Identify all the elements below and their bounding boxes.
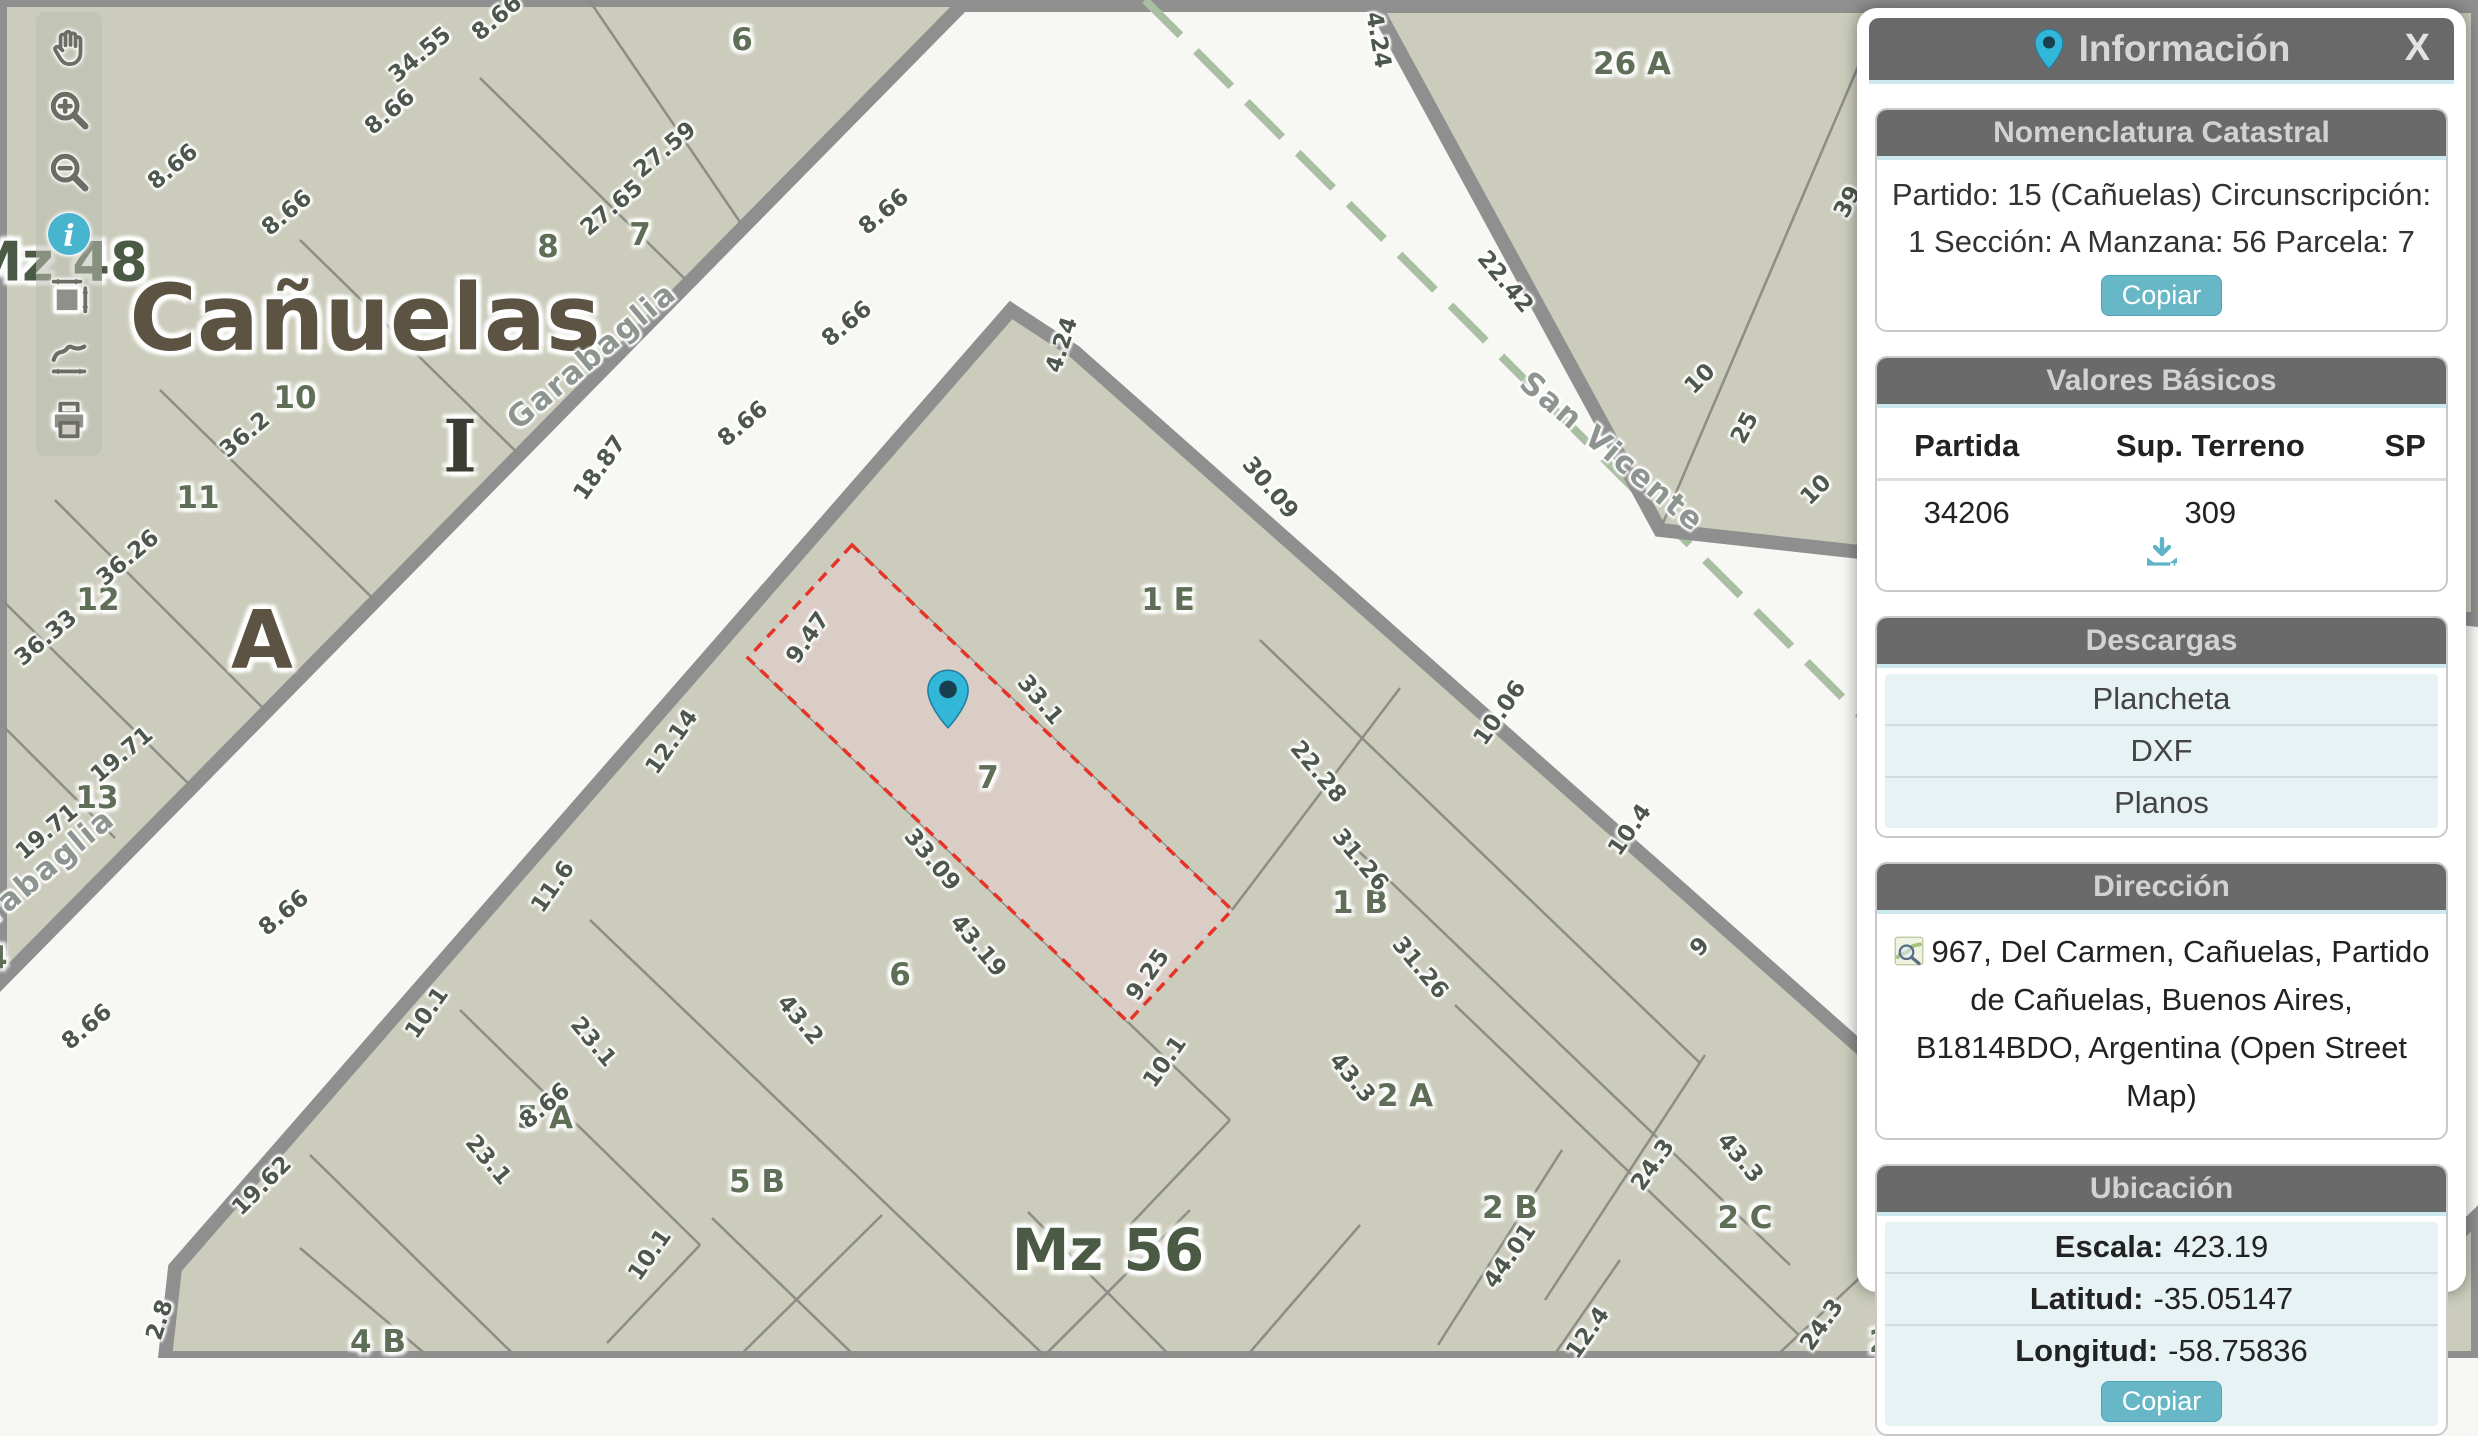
section-nomenclatura: Nomenclatura Catastral Partido: 15 (Cañu… [1875,108,2448,332]
section-direccion: Dirección 967, Del Carmen, Cañuelas, Par… [1875,862,2448,1140]
info-panel: Información X Nomenclatura Catastral Par… [1857,8,2466,1292]
panel-pin-icon [2033,28,2065,70]
location-values: Escala: 423.19 Latitud: -35.05147 Longit… [1885,1222,2438,1376]
section-valores: Valores Básicos Partida Sup. Terreno SP … [1875,356,2448,592]
location-row: Longitud: -58.75836 [1885,1326,2438,1376]
measure-path-icon[interactable] [38,327,100,389]
section-title: Dirección [1877,864,2446,914]
location-row: Latitud: -35.05147 [1885,1274,2438,1326]
download-item[interactable]: DXF [1885,726,2438,778]
copy-location-row: Copiar [1885,1376,2438,1426]
section-ubicacion: Ubicación Escala: 423.19 Latitud: [1875,1164,2448,1436]
nomenclatura-text: Partido: 15 (Cañuelas) Circunscripción: … [1877,160,2446,269]
map-marker-pin-icon [925,668,971,730]
cell-sup-terreno: 309 [2056,480,2364,536]
download-item[interactable]: Plancheta [1885,674,2438,726]
panel-title: Información [2079,28,2291,70]
download-item[interactable]: Planos [1885,778,2438,828]
col-sp: SP [2364,418,2446,480]
svg-text:i: i [63,219,74,254]
download-tray-icon[interactable] [2142,537,2182,571]
section-title: Valores Básicos [1877,358,2446,408]
copy-nomenclatura-button[interactable]: Copiar [2101,275,2223,316]
close-icon[interactable]: X [2399,26,2436,71]
cell-sp [2364,480,2446,536]
pan-hand-icon[interactable] [38,17,100,79]
section-title: Descargas [1877,618,2446,668]
table-row: 34206 309 [1877,480,2446,536]
col-sup-terreno: Sup. Terreno [2056,418,2364,480]
section-descargas: Descargas Plancheta DXF Planos [1875,616,2448,838]
zoom-out-icon[interactable] [38,141,100,203]
location-row: Escala: 423.19 [1885,1222,2438,1274]
print-icon[interactable] [38,389,100,451]
valores-table: Partida Sup. Terreno SP 34206 309 [1877,418,2446,535]
location-rows: Escala: 423.19 Latitud: -35.05147 Longit… [1885,1222,2438,1426]
section-title: Ubicación [1877,1166,2446,1216]
col-partida: Partida [1877,418,2056,480]
descargas-list: Plancheta DXF Planos [1885,674,2438,828]
address-text: 967, Del Carmen, Cañuelas, Partido de Ca… [1877,914,2446,1138]
map-toolbar: i [36,12,102,456]
zoom-in-icon[interactable] [38,79,100,141]
copy-location-button[interactable]: Copiar [2101,1381,2223,1422]
panel-header: Información X [1869,18,2454,84]
cell-partida: 34206 [1877,480,2056,536]
info-icon[interactable]: i [38,203,100,265]
osm-map-icon [1894,936,1924,966]
measure-area-icon[interactable] [38,265,100,327]
section-title: Nomenclatura Catastral [1877,110,2446,160]
